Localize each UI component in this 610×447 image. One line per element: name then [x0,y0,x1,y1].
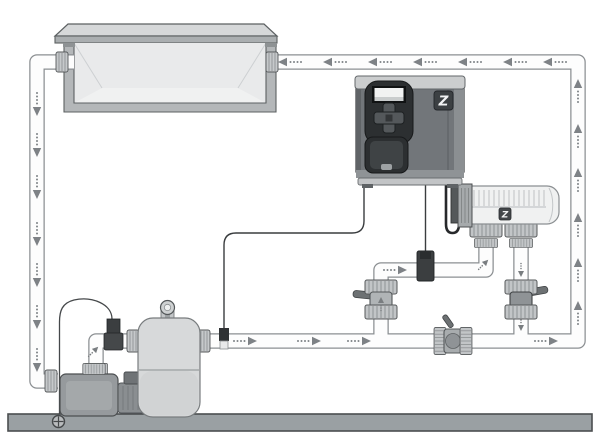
controller-logo-text: Z [438,94,449,110]
probe-cable [224,182,364,328]
earth-symbol [53,416,65,428]
cables [60,182,460,414]
cell-logo-text: Z [501,211,509,221]
pool-floor [74,88,266,103]
water-probe [219,328,229,341]
bypass-valve [434,314,472,355]
valve-handle [442,314,454,328]
cell-outlet-valve [505,280,548,319]
installation-diagram: Z Z [0,0,610,447]
lcd-display [375,88,404,97]
door-latch [381,164,392,170]
strainer-lid [83,364,105,375]
sand-filter [138,301,200,418]
pool-coping-top [55,24,277,36]
cell-inlet-valve [353,280,397,319]
controller: Z [355,76,465,188]
controller-base [358,178,462,185]
pool [55,24,277,112]
pool-coping-front [55,36,277,43]
electrolytic-cell: Z [451,184,559,227]
